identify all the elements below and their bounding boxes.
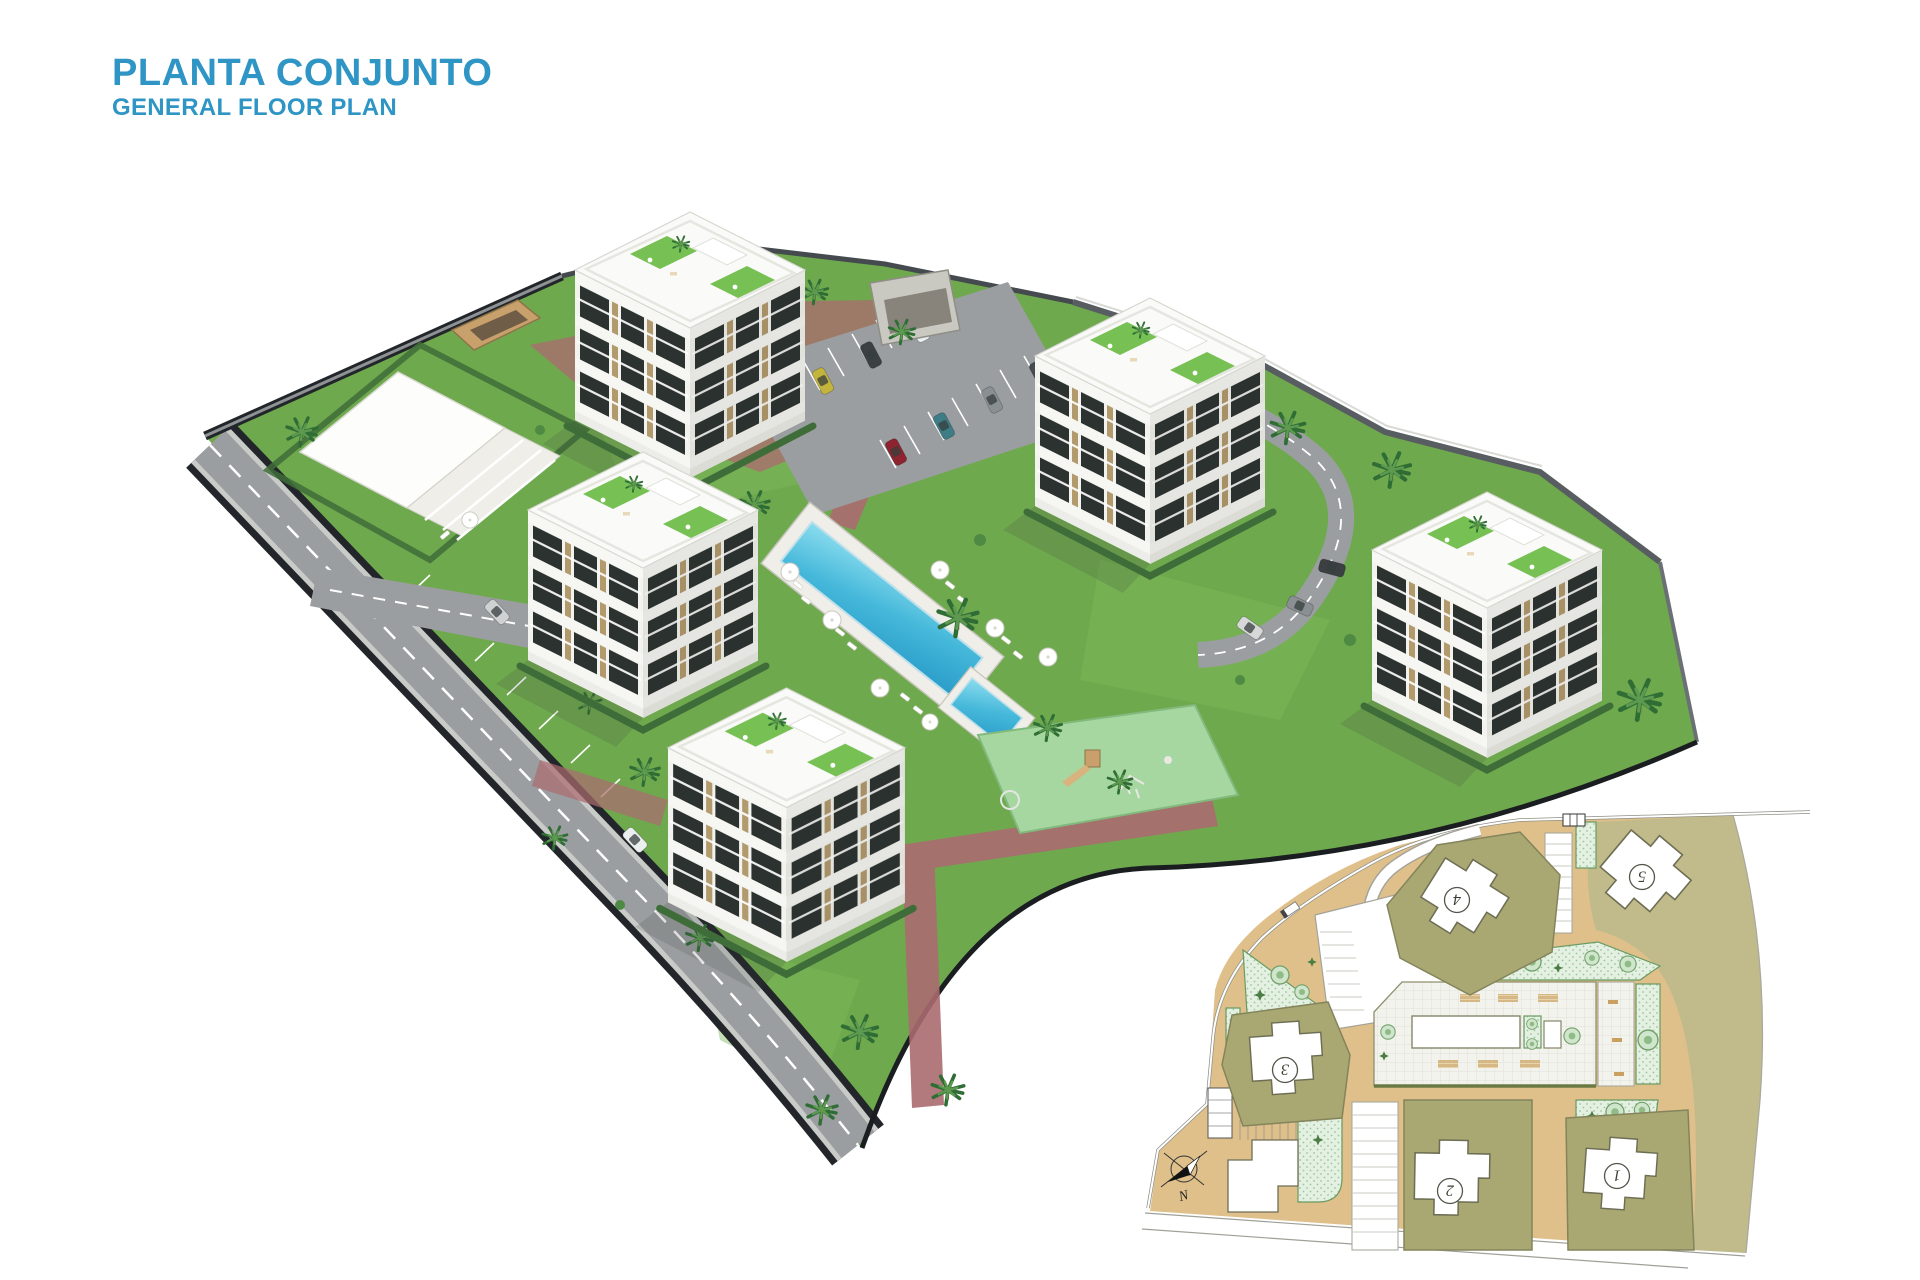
plan-label-2: 2 <box>1446 1182 1454 1199</box>
floor-plan-artwork: 4 5 3 2 1 <box>0 0 1920 1280</box>
plan-building-2: 2 <box>1404 1100 1532 1250</box>
page-subtitle: GENERAL FLOOR PLAN <box>112 94 492 123</box>
plan-label-5: 5 <box>1638 868 1646 885</box>
plan-walkway <box>1598 982 1634 1086</box>
plan-pool <box>1412 1016 1520 1048</box>
page-title-block: PLANTA CONJUNTO GENERAL FLOOR PLAN <box>112 54 492 123</box>
plan-label-1: 1 <box>1613 1167 1621 1184</box>
plan-building-3: 3 <box>1222 1002 1350 1126</box>
plan-communal-area <box>1374 982 1634 1086</box>
plan-label-3: 3 <box>1281 1061 1290 1078</box>
plan-building-1: 1 <box>1566 1110 1694 1250</box>
brochure-page: PLANTA CONJUNTO GENERAL FLOOR PLAN <box>0 0 1920 1280</box>
page-title: PLANTA CONJUNTO <box>112 54 492 94</box>
plan-label-4: 4 <box>1453 891 1461 908</box>
slide-tower <box>1085 750 1100 767</box>
inset-site-plan: 4 5 3 2 1 <box>1142 812 1810 1268</box>
plan-kids-pool <box>1544 1021 1561 1048</box>
